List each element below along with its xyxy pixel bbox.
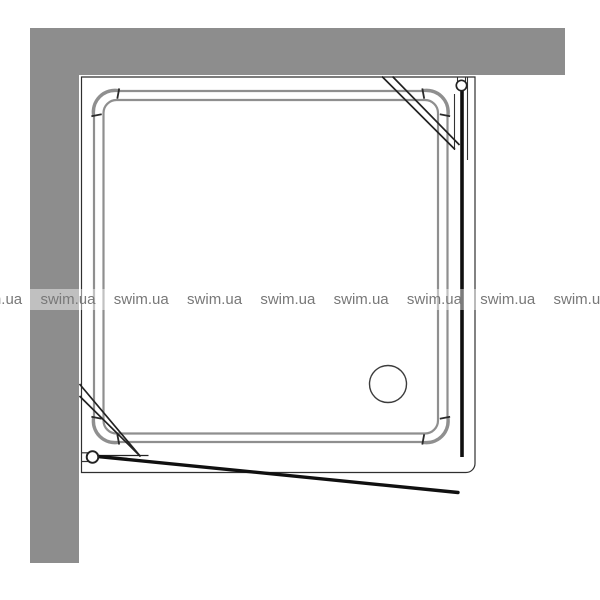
watermark-text: swim.ua [544,289,600,310]
top-wall [30,28,565,75]
watermark-text: swim.ua [178,289,251,310]
bottom-left-hinge [87,451,99,463]
watermark-band: swim.ua swim.ua swim.ua swim.ua swim.ua … [0,289,600,310]
right-panel-assembly [382,77,468,458]
corner-strut-top-right [382,77,455,150]
tray-inner-rim [104,100,439,434]
open-door-panel [98,457,458,493]
watermark-text: swim.ua [31,289,104,310]
drain-circle [370,366,407,403]
product-drawing: swim.ua swim.ua swim.ua swim.ua swim.ua … [0,0,600,600]
watermark-text: swim.ua [398,289,471,310]
top-right-hinge [456,80,466,90]
watermark-text: swim.ua [251,289,324,310]
watermark-text: swim.ua [324,289,397,310]
corner-strut-bottom-left [80,384,141,457]
door-assembly [80,384,459,493]
watermark-text: swim.ua [471,289,544,310]
watermark-text: swim.ua [105,289,178,310]
tray-outer-rim [94,91,448,442]
shower-tray [91,88,450,444]
watermark-row: swim.ua swim.ua swim.ua swim.ua swim.ua … [0,289,600,310]
tray-corner-ticks [91,88,450,444]
enclosure-frame [82,77,476,473]
watermark-text: swim.ua [0,289,31,310]
corner-strut-bottom-left [80,396,141,457]
